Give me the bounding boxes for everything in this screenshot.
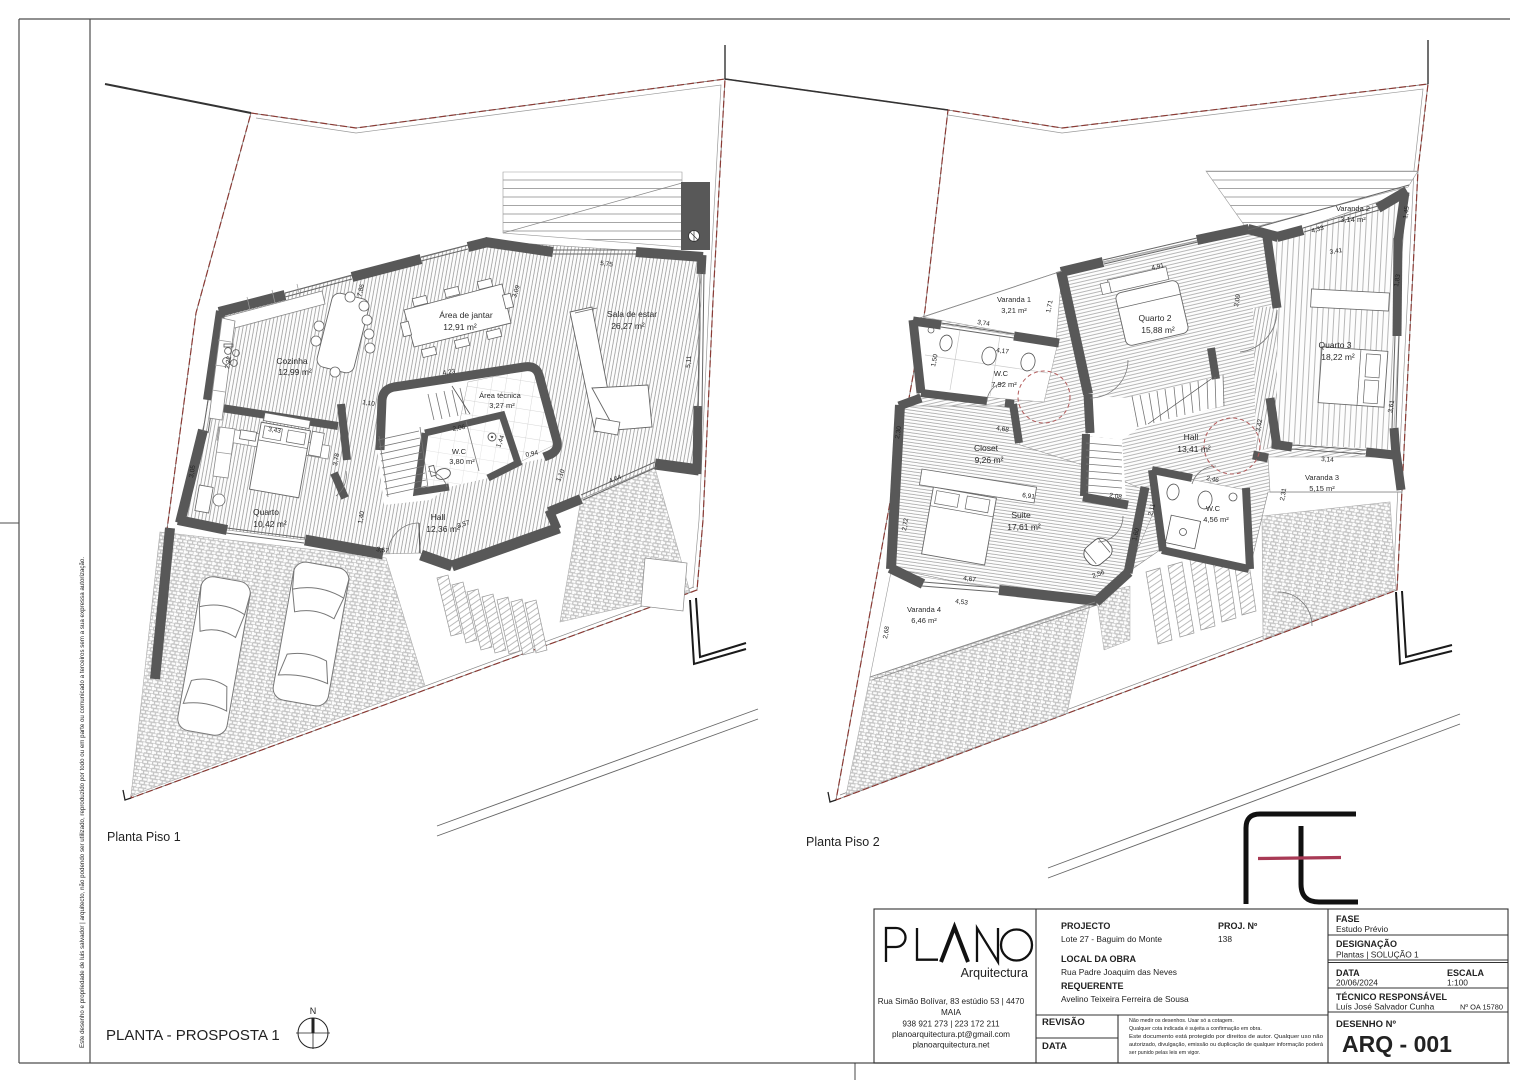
svg-text:planoarquitectura.pt@gmail.com: planoarquitectura.pt@gmail.com <box>892 1030 1010 1039</box>
svg-text:12,91 m²: 12,91 m² <box>443 322 477 332</box>
svg-text:6,46 m²: 6,46 m² <box>911 616 937 625</box>
svg-text:ESCALA: ESCALA <box>1447 968 1485 978</box>
svg-text:TÉCNICO RESPONSÁVEL: TÉCNICO RESPONSÁVEL <box>1336 992 1448 1002</box>
svg-text:9,26 m²: 9,26 m² <box>975 455 1004 465</box>
svg-text:N: N <box>310 1006 317 1016</box>
svg-text:Quarto 3: Quarto 3 <box>1318 340 1351 350</box>
svg-text:Hall: Hall <box>1184 432 1199 442</box>
svg-text:Qualquer cota indicada é sujei: Qualquer cota indicada é sujeita a confi… <box>1129 1026 1262 1032</box>
svg-text:PROJ. Nº: PROJ. Nº <box>1218 921 1258 931</box>
svg-text:3,80 m²: 3,80 m² <box>449 457 475 466</box>
svg-text:13,41 m²: 13,41 m² <box>1177 444 1211 454</box>
svg-text:ARQ - 001: ARQ - 001 <box>1342 1031 1452 1057</box>
svg-text:DATA: DATA <box>1042 1041 1067 1052</box>
svg-text:938 921 273 | 223 172 211: 938 921 273 | 223 172 211 <box>902 1020 1000 1029</box>
svg-text:PLANTA - PROSPOSTA 1: PLANTA - PROSPOSTA 1 <box>106 1027 280 1044</box>
svg-text:autorizado, divulgação, emissã: autorizado, divulgação, emissão ou dupli… <box>1129 1042 1323 1048</box>
svg-text:Varanda 2: Varanda 2 <box>1336 204 1370 213</box>
svg-text:planoarquitectura.net: planoarquitectura.net <box>913 1041 991 1050</box>
svg-text:DESIGNAÇÃO: DESIGNAÇÃO <box>1336 939 1397 949</box>
svg-text:1,45: 1,45 <box>1402 205 1411 219</box>
svg-text:W.C: W.C <box>452 447 467 456</box>
svg-text:Luís José Salvador Cunha: Luís José Salvador Cunha <box>1336 1002 1435 1012</box>
svg-text:5,11: 5,11 <box>685 355 693 368</box>
svg-text:Hall: Hall <box>431 512 446 522</box>
svg-text:Sala de estar: Sala de estar <box>607 309 657 319</box>
svg-text:Lote 27 - Baguim do Monte: Lote 27 - Baguim do Monte <box>1061 934 1162 944</box>
svg-text:Nº OA 15780: Nº OA 15780 <box>1460 1003 1503 1012</box>
svg-text:Avelino Teixeira Ferreira de S: Avelino Teixeira Ferreira de Sousa <box>1061 994 1189 1004</box>
svg-text:MAIA: MAIA <box>941 1008 962 1017</box>
svg-text:4,56 m²: 4,56 m² <box>1203 515 1229 524</box>
svg-text:PROJECTO: PROJECTO <box>1061 921 1110 931</box>
svg-text:ser punido pelas leis em vigor: ser punido pelas leis em vigor. <box>1129 1050 1200 1056</box>
svg-text:138: 138 <box>1218 934 1232 944</box>
svg-text:17,61 m²: 17,61 m² <box>1007 522 1041 532</box>
svg-text:Varanda 3: Varanda 3 <box>1305 473 1339 482</box>
svg-text:DESENHO Nº: DESENHO Nº <box>1336 1019 1396 1030</box>
svg-text:3,21 m²: 3,21 m² <box>1001 306 1027 315</box>
svg-text:Planta Piso 2: Planta Piso 2 <box>806 835 880 849</box>
svg-text:1:100: 1:100 <box>1447 978 1468 988</box>
svg-text:3,27 m²: 3,27 m² <box>489 401 515 410</box>
svg-text:Arquitectura: Arquitectura <box>961 966 1028 980</box>
svg-text:Quarto 2: Quarto 2 <box>1138 313 1171 323</box>
svg-text:W.C: W.C <box>994 369 1009 378</box>
svg-text:7,92 m²: 7,92 m² <box>991 380 1017 389</box>
svg-text:26,27 m²: 26,27 m² <box>611 321 645 331</box>
svg-text:18,22 m²: 18,22 m² <box>1321 352 1355 362</box>
svg-text:Closet: Closet <box>974 443 999 453</box>
svg-text:Varanda 1: Varanda 1 <box>997 295 1031 304</box>
svg-text:20/06/2024: 20/06/2024 <box>1336 978 1378 988</box>
svg-text:Área de jantar: Área de jantar <box>439 310 493 320</box>
svg-text:Suite: Suite <box>1011 510 1031 520</box>
svg-text:Este desenho e propriedade de: Este desenho e propriedade de luis salva… <box>79 557 86 1048</box>
svg-text:12,99 m²: 12,99 m² <box>278 367 312 377</box>
svg-text:Planta Piso 1: Planta Piso 1 <box>107 830 181 844</box>
svg-text:2,31: 2,31 <box>1279 487 1288 501</box>
svg-text:Estudo Prévio: Estudo Prévio <box>1336 924 1388 934</box>
svg-text:REQUERENTE: REQUERENTE <box>1061 981 1124 991</box>
svg-text:Rua Padre Joaquim das Neves: Rua Padre Joaquim das Neves <box>1061 967 1177 977</box>
svg-text:10,42 m²: 10,42 m² <box>253 519 287 529</box>
svg-text:Varanda 4: Varanda 4 <box>907 605 941 614</box>
svg-text:3,14 m²: 3,14 m² <box>1340 215 1366 224</box>
svg-text:Quarto: Quarto <box>253 507 279 517</box>
svg-text:12,36 m²: 12,36 m² <box>426 524 460 534</box>
svg-text:Área técnica: Área técnica <box>479 391 522 400</box>
svg-text:Cozinha: Cozinha <box>276 356 307 366</box>
svg-text:3,14: 3,14 <box>1321 456 1334 464</box>
svg-text:Rua Simão Bolívar, 83 estúdio: Rua Simão Bolívar, 83 estúdio 53 | 4470 <box>878 997 1025 1006</box>
svg-text:LOCAL DA OBRA: LOCAL DA OBRA <box>1061 954 1136 964</box>
svg-text:15,88 m²: 15,88 m² <box>1141 325 1175 335</box>
svg-text:W.C: W.C <box>1206 504 1221 513</box>
svg-text:REVISÃO: REVISÃO <box>1042 1017 1085 1028</box>
svg-text:Não medir os desenhos. Usar só: Não medir os desenhos. Usar só a cotagem… <box>1129 1018 1234 1024</box>
svg-text:5,15 m²: 5,15 m² <box>1309 484 1335 493</box>
svg-text:Este documento está protegi: Este documento está protegido por direit… <box>1129 1034 1323 1040</box>
svg-text:Plantas | SOLUÇÃO 1: Plantas | SOLUÇÃO 1 <box>1336 950 1419 960</box>
svg-text:FASE: FASE <box>1336 914 1360 924</box>
svg-text:DATA: DATA <box>1336 968 1360 978</box>
